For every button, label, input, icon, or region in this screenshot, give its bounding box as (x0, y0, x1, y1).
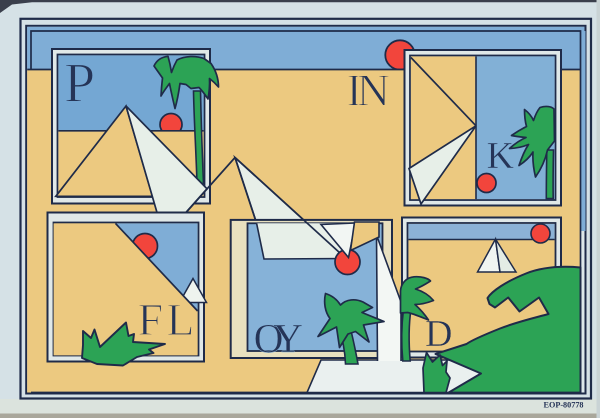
svg-text:IN: IN (347, 65, 391, 116)
svg-text:P: P (64, 53, 95, 115)
svg-text:D: D (425, 313, 452, 355)
svg-text:K: K (487, 135, 515, 177)
svg-text:EOP-80778: EOP-80778 (544, 400, 585, 410)
svg-text:FL: FL (138, 294, 195, 345)
svg-text:OY: OY (254, 315, 303, 361)
